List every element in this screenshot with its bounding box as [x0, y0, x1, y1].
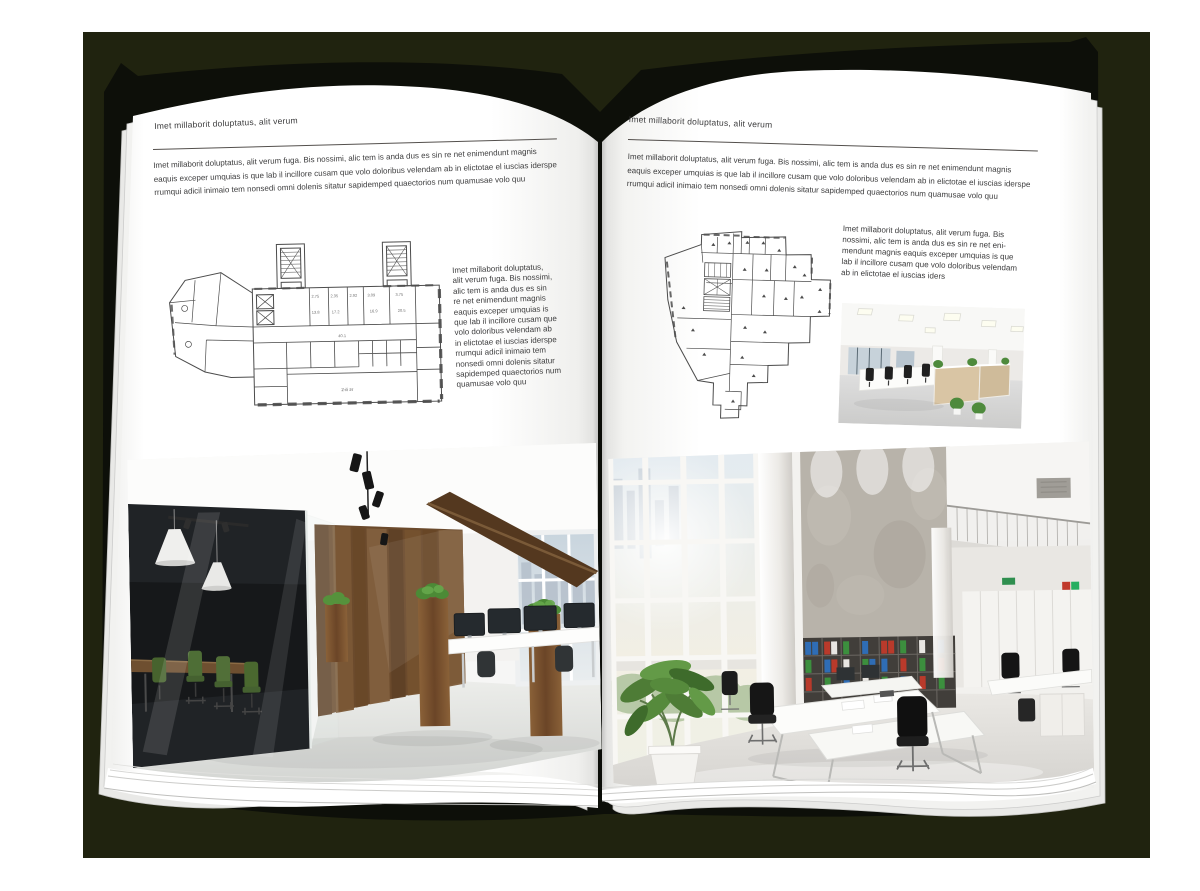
- floor-plan-right: [640, 221, 834, 429]
- left-side-text: Imet millaborit doluptatus, alit verum f…: [452, 261, 582, 391]
- svg-text:2.92: 2.92: [349, 293, 358, 298]
- floor-plan-left: 2.75 2.35 2.92 3.09 3.75 13.8 17.2 16.9 …: [156, 223, 452, 420]
- svg-text:17.2: 17.2: [332, 309, 341, 314]
- svg-text:2.75: 2.75: [311, 294, 320, 299]
- office-photo-left: [127, 443, 603, 799]
- floor-plan-dimension-labels: 2.75 2.35 2.92 3.09 3.75 13.8 17.2 16.9 …: [311, 292, 406, 339]
- office-photo-small: [838, 303, 1025, 434]
- glass-meeting-room: [128, 500, 339, 768]
- svg-text:40.1: 40.1: [338, 333, 347, 338]
- round-column: [758, 446, 796, 723]
- svg-text:2.35: 2.35: [330, 293, 339, 298]
- svg-text:20.5: 20.5: [398, 308, 407, 313]
- exit-sign: [1002, 578, 1015, 585]
- svg-text:16.9: 16.9: [370, 308, 379, 313]
- brochure-mockup-scene: Imet millaborit doluptatus, alit verum I…: [0, 0, 1200, 891]
- svg-text:3.09: 3.09: [367, 292, 376, 297]
- svg-text:3.75: 3.75: [395, 292, 404, 297]
- svg-text:13.8: 13.8: [312, 310, 321, 315]
- office-photo-right: [608, 441, 1095, 806]
- right-side-text: Imet millaborit doluptatus, alit verum f…: [841, 223, 1053, 286]
- floor-plan-caption: 2-й эт: [341, 386, 353, 392]
- concrete-wall: [800, 441, 953, 640]
- waste-bin: [1018, 698, 1035, 721]
